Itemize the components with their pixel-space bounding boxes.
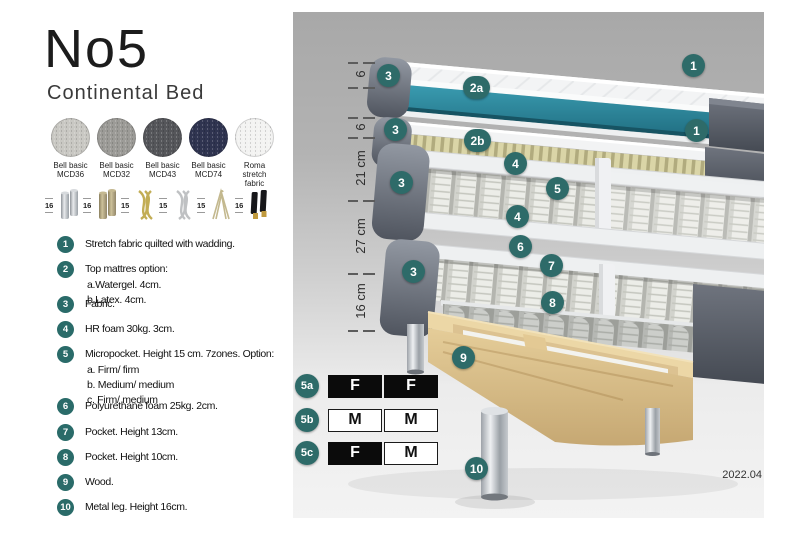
firmness-cell: F: [328, 375, 382, 398]
tick: [235, 212, 243, 213]
callout-badge: 3: [377, 64, 400, 87]
legend-text: Pocket. Height 10cm.: [85, 449, 178, 466]
leg-height-label: 16: [235, 201, 243, 210]
fabric-swatch-label: Bell basicMCD36: [49, 161, 92, 179]
callout-badge: 8: [541, 291, 564, 314]
legend-number-badge: 7: [57, 424, 74, 441]
legend-item: 7 Pocket. Height 13cm.: [57, 424, 178, 441]
legend-number-badge: 5: [57, 346, 74, 363]
leg-icon-cylinder-brass: [96, 188, 120, 222]
firmness-cell: M: [328, 409, 382, 432]
leg-height-label: 15: [159, 201, 167, 210]
leg-icon-twisted-gold: [134, 188, 158, 222]
tick: [83, 198, 91, 199]
fabric-swatches: Bell basicMCD36 Bell basicMCD32 Bell bas…: [49, 118, 276, 188]
firmness-row-badge: 5a: [295, 374, 319, 398]
legend-number-badge: 1: [57, 236, 74, 253]
legend-number-badge: 6: [57, 398, 74, 415]
legend-text: Fabric.: [85, 296, 115, 313]
leg-icon-black-gold-tip: [248, 188, 272, 222]
version-label: 2022.04: [722, 469, 762, 481]
leg-option: 15: [197, 186, 235, 224]
legend-item: 1 Stretch fabric quilted with wadding.: [57, 236, 235, 253]
firmness-cell: F: [328, 442, 382, 465]
tick: [121, 198, 129, 199]
legend-number-badge: 2: [57, 261, 74, 278]
legend-text: Pocket. Height 13cm.: [85, 424, 178, 441]
fabric-swatch: Bell basicMCD43: [141, 118, 184, 188]
callout-badge: 5: [546, 177, 569, 200]
legend-number-badge: 8: [57, 449, 74, 466]
leg-height-label: 15: [197, 201, 205, 210]
leg-option: 15: [159, 186, 197, 224]
callout-badge: 3: [402, 260, 425, 283]
callout-badge: 2b: [464, 129, 491, 152]
leg-height-label: 16: [83, 201, 91, 210]
legend-text: Micropocket. Height 15 cm. 7zones. Optio…: [85, 346, 274, 363]
fabric-swatch-label: Bell basicMCD74: [187, 161, 230, 179]
firmness-row-badge: 5c: [295, 441, 319, 465]
legend-text: Metal leg. Height 16cm.: [85, 499, 187, 516]
legend-item: 9 Wood.: [57, 474, 113, 491]
fabric-swatch: Romastretch fabric: [233, 118, 276, 188]
page-title: No5: [44, 18, 149, 80]
leg-option: 16: [45, 186, 83, 224]
callout-badge: 3: [390, 171, 413, 194]
measure-label: 16 cm: [352, 271, 370, 331]
measure-label: 27 cm: [352, 206, 370, 266]
fabric-swatch-label: Romastretch fabric: [233, 161, 276, 188]
legend-number-badge: 4: [57, 321, 74, 338]
callout-badge: 1: [682, 54, 705, 77]
tick: [197, 198, 205, 199]
fabric-swatch-circle: [189, 118, 228, 157]
tick: [159, 212, 167, 213]
legend-text: Polyurethane foam 25kg. 2cm.: [85, 398, 218, 415]
callout-badge: 3: [384, 118, 407, 141]
legend-number-badge: 3: [57, 296, 74, 313]
tick: [159, 198, 167, 199]
legend-number-badge: 9: [57, 474, 74, 491]
leg-height-label: 15: [121, 201, 129, 210]
legend-subitem: a.Watergel. 4cm.: [87, 278, 168, 293]
callout-badge: 4: [504, 152, 527, 175]
tick: [235, 198, 243, 199]
tick: [45, 198, 53, 199]
fabric-swatch-circle: [51, 118, 90, 157]
firmness-row: 5a F F: [295, 374, 438, 398]
bed-diagram-panel: 6 6 21 cm 27 cm 16 cm 3 2a 1 3 2b 1 4 5 …: [293, 12, 764, 518]
callout-badge: 2a: [463, 76, 490, 99]
leg-option: 15: [121, 186, 159, 224]
tick: [45, 212, 53, 213]
tick: [197, 212, 205, 213]
measure-label: 6: [352, 44, 370, 104]
tick: [121, 212, 129, 213]
legend-text: Top mattres option:: [85, 261, 168, 278]
tick: [83, 212, 91, 213]
callout-badge: 9: [452, 346, 475, 369]
legend-subitem: a. Firm/ firm: [87, 363, 274, 378]
leg-icon-hairpin: [210, 188, 234, 222]
legend-subitem: b. Medium/ medium: [87, 378, 274, 393]
legend-text: Stretch fabric quilted with wadding.: [85, 236, 235, 253]
fabric-swatch: Bell basicMCD74: [187, 118, 230, 188]
callout-badge: 7: [540, 254, 563, 277]
legend-number-badge: 10: [57, 499, 74, 516]
firmness-cell: F: [384, 375, 438, 398]
legend-text: Wood.: [85, 474, 113, 491]
firmness-row-badge: 5b: [295, 408, 319, 432]
leg-icon-twisted-silver: [172, 188, 196, 222]
legend-item: 8 Pocket. Height 10cm.: [57, 449, 178, 466]
leg-icon-cylinder-silver: [58, 188, 82, 222]
measure-label: 21 cm: [352, 138, 370, 198]
firmness-cell: M: [384, 409, 438, 432]
leg-option: 16: [83, 186, 121, 224]
fabric-swatch: Bell basicMCD36: [49, 118, 92, 188]
firmness-row: 5c F M: [295, 441, 438, 465]
callout-badge: 10: [465, 457, 488, 480]
legend-item: 10 Metal leg. Height 16cm.: [57, 499, 187, 516]
firmness-cell: M: [384, 442, 438, 465]
fabric-swatch-circle: [143, 118, 182, 157]
fabric-swatch-circle: [97, 118, 136, 157]
legend-item: 4 HR foam 30kg. 3cm.: [57, 321, 174, 338]
leg-option: 16: [235, 186, 273, 224]
callout-badge: 1: [685, 119, 708, 142]
callout-badge: 6: [509, 235, 532, 258]
legend-text: HR foam 30kg. 3cm.: [85, 321, 174, 338]
product-sheet: { "header": { "title": "No5", "subtitle"…: [0, 0, 800, 533]
fabric-swatch-label: Bell basicMCD43: [141, 161, 184, 179]
fabric-swatch: Bell basicMCD32: [95, 118, 138, 188]
callout-badge: 4: [506, 205, 529, 228]
page-subtitle: Continental Bed: [47, 82, 204, 105]
legend-item: 3 Fabric.: [57, 296, 115, 313]
leg-options: 16 16 15: [45, 186, 273, 224]
firmness-row: 5b M M: [295, 408, 438, 432]
fabric-swatch-circle: [235, 118, 274, 157]
leg-height-label: 16: [45, 201, 53, 210]
fabric-swatch-label: Bell basicMCD32: [95, 161, 138, 179]
legend-item: 6 Polyurethane foam 25kg. 2cm.: [57, 398, 218, 415]
